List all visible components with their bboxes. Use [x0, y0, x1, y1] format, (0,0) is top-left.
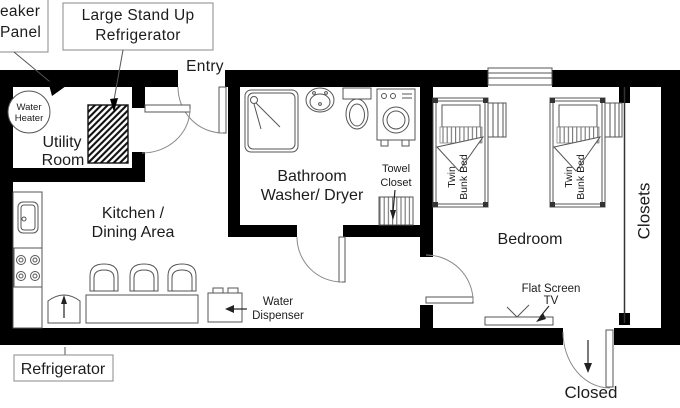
kitchen-sink [18, 202, 38, 233]
utility-room-door [142, 105, 190, 153]
entry-door-leaf [219, 87, 226, 133]
water-dispenser-label-line2: Dispenser [252, 310, 304, 322]
bathroom: Bathroom Washer/ Dryer Towel Closet [245, 88, 415, 225]
bedroom-door-arc [426, 255, 473, 301]
refrigerator-label: Refrigerator [21, 361, 106, 378]
kitchen: Kitchen / Dining Area Water Dispenser [13, 192, 304, 328]
standup-refrigerator [88, 105, 128, 163]
towel-closet-label-line2: Closet [380, 177, 411, 189]
floor-plan-canvas: Water Heater Utility Room Kitchen / Dini… [0, 0, 680, 408]
bedroom-window [488, 68, 552, 85]
wall-bottom-main [0, 328, 563, 345]
toilet [343, 88, 371, 129]
bedroom-label: Bedroom [498, 231, 563, 248]
towel-closet: Towel Closet [379, 163, 413, 225]
refrigerator-callout: Refrigerator [14, 347, 113, 381]
water-heater-label-line2: Heater [15, 113, 44, 124]
closed-label: Closed [565, 383, 618, 402]
breaker-panel-label-line2: Panel [0, 24, 41, 41]
closed-door-arc [563, 332, 610, 388]
bathroom-door-arc [297, 237, 342, 282]
bathroom-door [297, 237, 345, 282]
wall-right [661, 70, 680, 345]
bathroom-label-line2: Washer/ Dryer [261, 187, 364, 204]
utility-room-label-line2: Room [42, 152, 85, 169]
dining-table [86, 295, 198, 323]
flat-screen-tv: Flat Screen TV [485, 283, 580, 325]
closets-label: Closets [635, 183, 654, 240]
bunk-bed-1-label-line2: Bunk Bed [458, 154, 470, 200]
bunk-bed-2: Twin Bunk Bed [550, 98, 622, 207]
bunk-bed-1-label-line1: Twin [446, 166, 458, 188]
wall-bottom-right [614, 328, 680, 345]
entry-label: Entry [186, 58, 224, 75]
closed-door-leaf [606, 330, 613, 387]
utility-door-arc [142, 109, 190, 153]
utility-door-leaf [145, 105, 190, 112]
wall-bathroom-left [228, 87, 240, 237]
small-refrigerator [48, 295, 80, 323]
floor-plan: Water Heater Utility Room Kitchen / Dini… [0, 0, 680, 408]
utility-room: Water Heater Utility Room [8, 91, 128, 169]
bedroom-door [426, 255, 473, 303]
wall-utility-right-top [132, 87, 145, 108]
bunk-bed-2-label-line1: Twin [563, 166, 575, 188]
washer-dryer [377, 89, 415, 146]
dining-chairs [90, 264, 196, 291]
water-heater-label-line1: Water [17, 102, 42, 113]
wall-top-middle [225, 70, 488, 87]
bunk-bed-1: Twin Bunk Bed [433, 98, 506, 207]
closed-door-arrow-head [584, 363, 592, 373]
closed-exit-door [563, 330, 613, 388]
towel-closet-label-line1: Towel [382, 163, 410, 175]
bedroom: Twin Bunk Bed Twin Bunk Bed [433, 98, 622, 325]
wall-utility-bottom [13, 168, 145, 182]
utility-room-label-line1: Utility [42, 134, 81, 151]
large-fridge-label-line2: Refrigerator [95, 27, 180, 44]
bathroom-door-leaf [339, 237, 345, 282]
bed-pillow [442, 105, 480, 127]
wall-bathroom-bottom-right [343, 225, 433, 237]
bunk-ladder-icon [488, 103, 506, 137]
stove [14, 248, 42, 287]
wall-bedroom-divider-top [420, 87, 433, 257]
water-dispenser [208, 288, 247, 322]
shower [245, 90, 298, 152]
tv-label-line1: Flat Screen [522, 283, 581, 295]
bunk-ladder-icon [605, 103, 622, 137]
bathroom-sink [306, 88, 334, 112]
kitchen-label-line2: Dining Area [92, 224, 175, 241]
bed-pillow [559, 105, 597, 127]
breaker-panel-label-line1: eaker [0, 3, 40, 20]
bathroom-label-line1: Bathroom [277, 168, 346, 185]
large-fridge-label-line1: Large Stand Up [82, 7, 195, 24]
water-dispenser-label-line1: Water [263, 296, 293, 308]
bedroom-door-leaf [426, 297, 473, 303]
tv-label-line2: TV [544, 295, 559, 307]
wall-top-right [552, 70, 680, 87]
bunk-bed-2-label-line2: Bunk Bed [575, 154, 587, 200]
wall-bathroom-bottom-left [228, 225, 297, 237]
kitchen-label-line1: Kitchen / [102, 205, 165, 222]
wall-bedroom-divider-bottom [420, 305, 433, 328]
wall-top-left [5, 70, 178, 87]
